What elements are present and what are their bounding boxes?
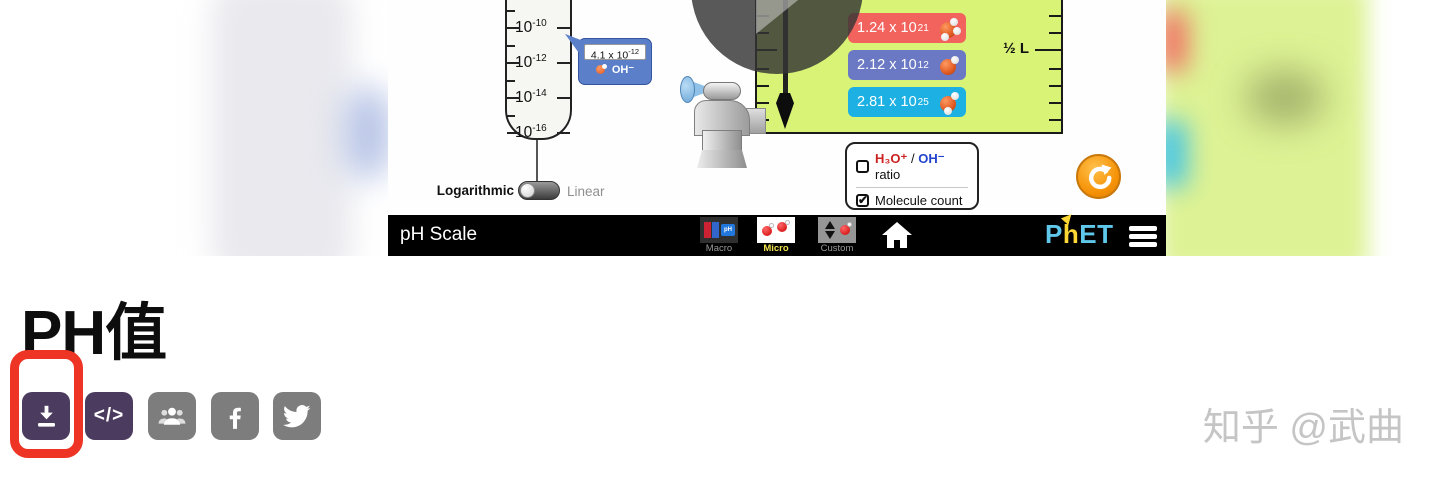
scale-tick — [507, 62, 520, 64]
tab-custom[interactable]: Custom — [817, 217, 857, 254]
beaker-tick — [1049, 85, 1061, 87]
beaker-tick — [1049, 68, 1061, 70]
oh-molecule-icon — [596, 65, 608, 75]
scale-dash — [557, 27, 570, 29]
beaker-major-tick — [1035, 49, 1061, 51]
beaker-volume-label: ½ L — [1003, 40, 1029, 57]
oh-concentration-indicator[interactable]: 4.1 x 10-12 OH⁻ — [578, 38, 652, 85]
faucet-nozzle — [697, 150, 747, 168]
letterbox-blur-smudge — [1245, 70, 1325, 125]
h3o-count-value: 1.24 x 10 — [857, 20, 917, 36]
letterbox-blur-right — [1160, 0, 1368, 256]
ratio-checkbox-row[interactable]: H₃O⁺ / OH⁻ ratio — [856, 151, 968, 182]
drain-faucet[interactable] — [680, 72, 766, 172]
article-section: PH值 </> — [0, 256, 1440, 478]
oh-ion-label: OH⁻ — [612, 63, 634, 76]
beaker-tick — [1049, 102, 1061, 104]
scale-stem-line — [536, 140, 538, 183]
faucet-handle[interactable] — [680, 76, 695, 103]
oh-concentration-value: 4.1 x 10-12 — [584, 44, 646, 60]
toggle-label-linear: Linear — [567, 184, 605, 199]
concentration-scale: 10-8 10-10 10-12 10-14 10-16 — [505, 0, 572, 140]
facebook-icon — [221, 402, 249, 430]
oh-ion-row: OH⁻ — [579, 63, 651, 76]
embed-button[interactable]: </> — [85, 392, 133, 440]
molecule-count-checkbox-row[interactable]: ✔ Molecule count — [856, 193, 968, 208]
sim-navbar: pH Scale pH Macro Micro — [388, 215, 1166, 256]
macro-thumbnail: pH — [700, 217, 738, 243]
scale-tick — [507, 115, 515, 117]
h2o-molecule-icon — [938, 92, 964, 114]
toggle-label-logarithmic: Logarithmic — [428, 183, 514, 198]
ph-probe-tip[interactable] — [776, 93, 794, 129]
molecule-count-checkbox[interactable]: ✔ — [856, 194, 869, 207]
scale-tick — [507, 80, 515, 82]
phet-simulation-frame: ½ L 1.24 x 1021 2.12 x 1012 2.81 x — [388, 0, 1166, 256]
custom-thumbnail — [818, 217, 856, 243]
scale-tick — [507, 132, 520, 134]
page: ½ L 1.24 x 1021 2.12 x 1012 2.81 x — [0, 0, 1440, 478]
scale-dash — [557, 97, 570, 99]
tab-macro[interactable]: pH Macro — [699, 217, 739, 254]
video-player[interactable]: ½ L 1.24 x 1021 2.12 x 1012 2.81 x — [0, 0, 1440, 256]
scale-tick — [507, 45, 515, 47]
scale-tick-label: 10-16 — [515, 123, 547, 145]
h2o-count-badge: 2.81 x 1025 — [848, 87, 966, 117]
tab-micro[interactable]: Micro — [756, 217, 796, 254]
scale-dash — [557, 62, 570, 64]
scale-tick — [507, 27, 520, 29]
scale-dash — [557, 132, 570, 134]
twitter-button[interactable] — [273, 392, 321, 440]
zhihu-watermark: 知乎 @武曲 — [1203, 396, 1404, 451]
twitter-icon — [283, 402, 311, 430]
h2o-count-exponent: 25 — [918, 97, 929, 108]
beaker-tick — [1049, 32, 1061, 34]
molecule-count-label: Molecule count — [875, 193, 962, 208]
facebook-button[interactable] — [211, 392, 259, 440]
phet-logo[interactable]: PhET — [1045, 219, 1113, 250]
ratio-checkbox[interactable] — [856, 160, 869, 173]
h2o-count-value: 2.81 x 10 — [857, 94, 917, 110]
faucet-valve-rod — [703, 82, 741, 100]
oh-molecule-icon — [938, 55, 964, 77]
oh-count-value: 2.12 x 10 — [857, 57, 917, 73]
reset-arrow-icon — [1084, 162, 1114, 192]
oh-count-exponent: 12 — [918, 60, 929, 71]
letterbox-blur-blue-blob — [344, 88, 392, 178]
play-icon — [756, 0, 818, 34]
reset-all-button[interactable] — [1076, 154, 1121, 199]
embed-code-icon: </> — [94, 405, 124, 427]
home-button[interactable] — [880, 220, 914, 250]
h3o-count-badge: 1.24 x 1021 — [848, 13, 966, 43]
beaker-tick — [1049, 119, 1061, 121]
menu-icon — [1129, 226, 1157, 231]
log-linear-toggle[interactable] — [518, 181, 560, 200]
home-icon — [880, 220, 914, 250]
scale-tick-label: 10-12 — [515, 53, 547, 75]
download-icon — [33, 403, 60, 430]
toggle-knob[interactable] — [520, 183, 535, 198]
micro-thumbnail — [757, 217, 795, 243]
scale-tick-label: 10-10 — [515, 18, 547, 40]
view-options-panel: H₃O⁺ / OH⁻ ratio ✔ Molecule count — [845, 142, 979, 210]
h3o-molecule-icon — [938, 18, 964, 40]
panel-divider — [856, 187, 968, 188]
scale-tick — [507, 97, 520, 99]
oh-count-badge: 2.12 x 1012 — [848, 50, 966, 80]
download-button[interactable] — [22, 392, 70, 440]
share-community-button[interactable] — [148, 392, 196, 440]
scale-tick — [507, 10, 515, 12]
scale-tick-label: 10-14 — [515, 88, 547, 110]
faucet-spout — [702, 130, 742, 152]
people-icon — [158, 402, 186, 430]
sim-title: pH Scale — [400, 224, 477, 246]
letterbox-blur-left — [212, 0, 352, 256]
beaker-tick — [1049, 15, 1061, 17]
h3o-count-exponent: 21 — [918, 23, 929, 34]
menu-button[interactable] — [1129, 226, 1157, 250]
ratio-label: H₃O⁺ / OH⁻ ratio — [875, 151, 968, 182]
